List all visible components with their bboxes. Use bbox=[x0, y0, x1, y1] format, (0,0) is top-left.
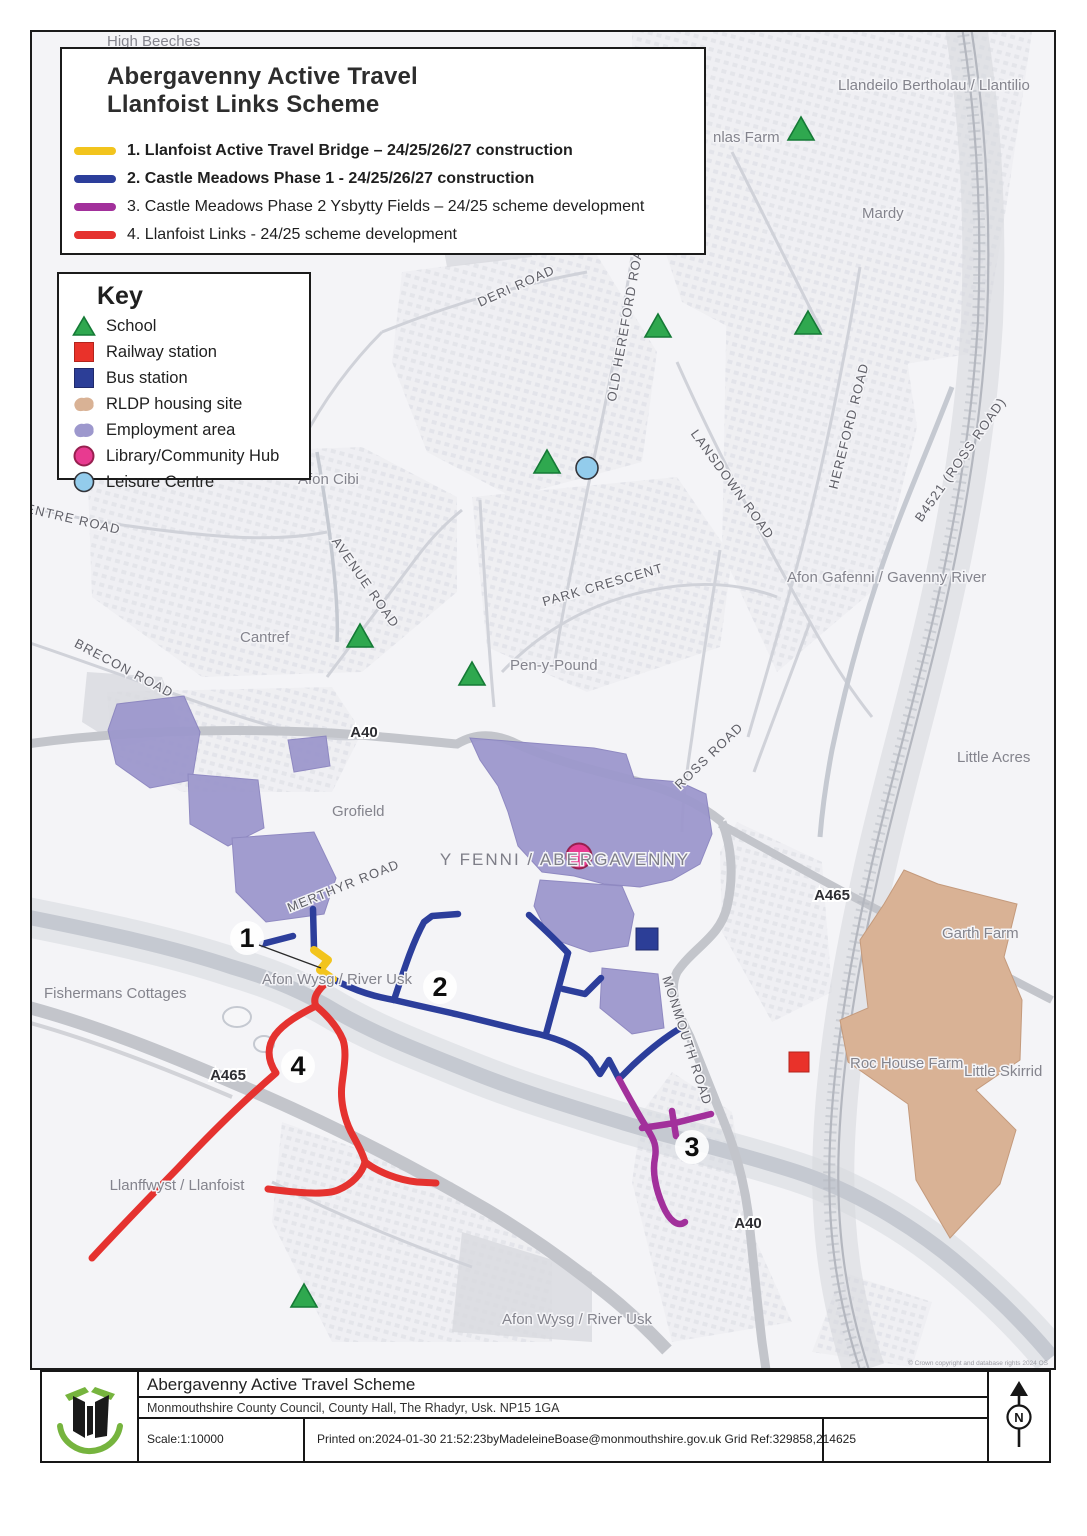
map-label: A465 bbox=[814, 887, 850, 904]
key-item-label: Library/Community Hub bbox=[106, 447, 279, 466]
key-item-label: School bbox=[106, 317, 156, 336]
map-label: Cantref bbox=[240, 629, 290, 646]
footer-scheme-title: Abergavenny Active Travel Scheme bbox=[139, 1372, 987, 1398]
key-item: Railway station bbox=[72, 339, 309, 365]
key-item: School bbox=[72, 313, 309, 339]
map-label: Afon Wysg / River Usk bbox=[262, 971, 412, 988]
map-label: Garth Farm bbox=[942, 925, 1019, 942]
scheme-legend: 1. Llanfoist Active Travel Bridge – 24/2… bbox=[74, 140, 704, 247]
map-label: Roc House Farm bbox=[850, 1055, 963, 1072]
footer-printed-info: Printed on:2024-01-30 21:52:23byMadelein… bbox=[307, 1419, 987, 1461]
scheme-legend-row: 3. Castle Meadows Phase 2 Ysbytty Fields… bbox=[74, 196, 704, 219]
map-label: Afon Gafenni / Gavenny River bbox=[787, 569, 986, 586]
footer-scale: Scale:1:10000 bbox=[139, 1419, 305, 1461]
map-label: Little Acres bbox=[957, 749, 1030, 766]
route-line-swatch bbox=[74, 175, 116, 183]
map-label: Mardy bbox=[862, 205, 904, 222]
north-letter: N bbox=[1014, 1410, 1023, 1425]
scheme-legend-row: 2. Castle Meadows Phase 1 - 24/25/26/27 … bbox=[74, 168, 704, 191]
map-title: Abergavenny Active Travel Llanfoist Link… bbox=[107, 63, 704, 120]
bus-station-icon bbox=[72, 366, 96, 390]
map-label: nlas Farm bbox=[713, 129, 780, 146]
leisure-centre-icon bbox=[72, 470, 96, 494]
scheme-legend-label: 2. Castle Meadows Phase 1 - 24/25/26/27 … bbox=[127, 170, 534, 188]
key-item-label: RLDP housing site bbox=[106, 395, 242, 414]
north-arrow: N bbox=[987, 1372, 1049, 1461]
map-label: Llanffwyst / Llanfoist bbox=[110, 1177, 246, 1194]
footer-address: Monmouthshire County Council, County Hal… bbox=[139, 1398, 987, 1419]
key-item-label: Railway station bbox=[106, 343, 217, 362]
key-heading: Key bbox=[97, 282, 309, 311]
map-label: A40 bbox=[734, 1215, 762, 1232]
map-label: 3 bbox=[684, 1132, 699, 1162]
scheme-legend-row: 4. Llanfoist Links - 24/25 scheme develo… bbox=[74, 224, 704, 247]
key-item-label: Bus station bbox=[106, 369, 188, 388]
north-arrow-icon: N bbox=[999, 1379, 1039, 1455]
school-triangle-icon bbox=[72, 314, 96, 338]
scheme-title-box: Abergavenny Active Travel Llanfoist Link… bbox=[60, 47, 706, 255]
map-label: A40 bbox=[350, 724, 378, 741]
route-line-swatch bbox=[74, 147, 116, 155]
rldp-housing-icon bbox=[72, 392, 96, 416]
railway-station-icon bbox=[72, 340, 96, 364]
employment-area-icon bbox=[72, 418, 96, 442]
map-label: Little Skirrid bbox=[964, 1063, 1042, 1080]
railway-station-icon bbox=[789, 1052, 809, 1072]
library-hub-icon bbox=[72, 444, 96, 468]
route-line-swatch bbox=[74, 203, 116, 211]
leisure-centre-icon bbox=[576, 457, 598, 479]
key-box: Key SchoolRailway stationBus stationRLDP… bbox=[57, 272, 311, 480]
scheme-legend-row: 1. Llanfoist Active Travel Bridge – 24/2… bbox=[74, 140, 704, 163]
map-label: Pen-y-Pound bbox=[510, 657, 598, 674]
footer-divider bbox=[822, 1419, 824, 1461]
map-label: 4 bbox=[290, 1051, 305, 1081]
map-label: Afon Wysg / River Usk bbox=[502, 1311, 652, 1328]
map-label: 1 bbox=[239, 923, 254, 953]
scheme-legend-label: 4. Llanfoist Links - 24/25 scheme develo… bbox=[127, 226, 457, 244]
map-label: © Crown copyright and database rights 20… bbox=[908, 1359, 1049, 1367]
map-label: Llandeilo Bertholau / Llantilio bbox=[838, 77, 1030, 94]
key-item-label: Employment area bbox=[106, 421, 235, 440]
bus-station-icon bbox=[636, 928, 658, 950]
key-item: Library/Community Hub bbox=[72, 443, 309, 469]
key-item-label: Leisure Centre bbox=[106, 473, 214, 492]
map-label: A465 bbox=[210, 1067, 246, 1084]
map-label: Y FENNI / ABERGAVENNY bbox=[440, 850, 690, 869]
map-label: Grofield bbox=[332, 803, 385, 820]
footer-panel: Abergavenny Active Travel Scheme Monmout… bbox=[40, 1370, 1051, 1463]
key-items: SchoolRailway stationBus stationRLDP hou… bbox=[59, 313, 309, 495]
key-item: Employment area bbox=[72, 417, 309, 443]
scheme-legend-label: 1. Llanfoist Active Travel Bridge – 24/2… bbox=[127, 142, 573, 160]
page: { "page": { "title_line1": "Abergavenny … bbox=[0, 0, 1087, 1536]
map-label: 2 bbox=[432, 972, 447, 1002]
key-item: RLDP housing site bbox=[72, 391, 309, 417]
key-item: Bus station bbox=[72, 365, 309, 391]
map-label: Fishermans Cottages bbox=[44, 985, 187, 1002]
scheme-legend-label: 3. Castle Meadows Phase 2 Ysbytty Fields… bbox=[127, 198, 644, 216]
council-logo bbox=[42, 1372, 139, 1461]
key-item: Leisure Centre bbox=[72, 469, 309, 495]
route-line-swatch bbox=[74, 231, 116, 239]
monmouthshire-logo-icon bbox=[51, 1378, 129, 1456]
